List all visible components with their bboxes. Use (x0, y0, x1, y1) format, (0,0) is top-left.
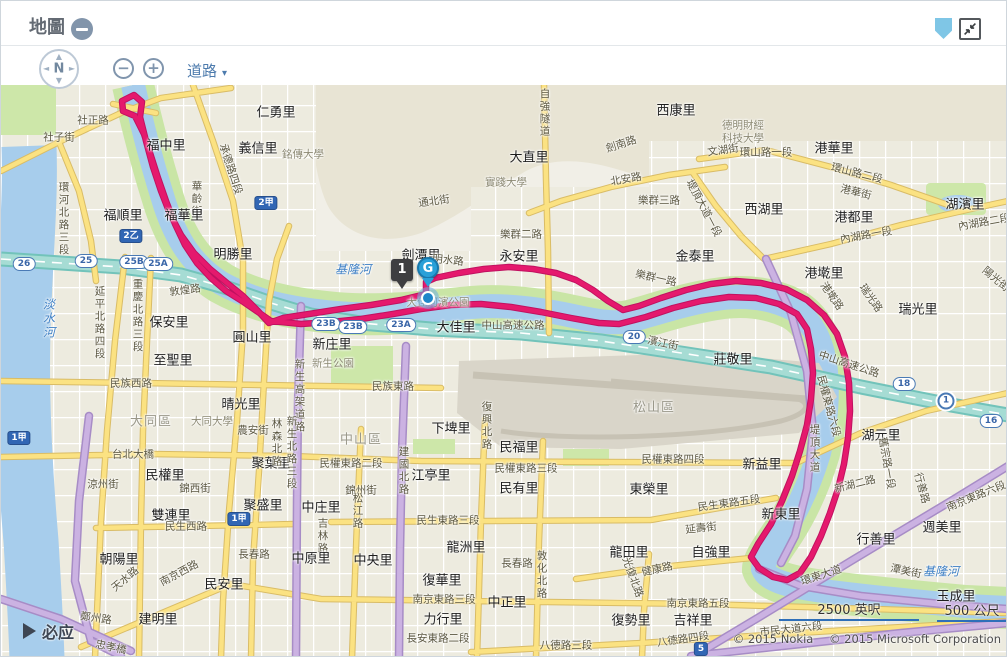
resize-button[interactable] (959, 18, 981, 40)
copyright-microsoft: © 2015 Microsoft Corporation (829, 632, 1001, 646)
scale-metric: 500 公尺 (937, 600, 1007, 622)
marker-label: G (417, 257, 439, 279)
chevron-down-icon: ▾ (222, 68, 227, 79)
minus-icon (76, 28, 88, 31)
bing-logo-text: 必应 (42, 619, 74, 643)
collapse-panel-button[interactable] (71, 18, 93, 40)
compass-control[interactable]: N ▲ ▼ ◄ ► (39, 49, 79, 89)
marker-tail (422, 278, 434, 287)
zoom-in-button[interactable]: + (143, 58, 164, 79)
route-marker-G[interactable]: G (416, 257, 440, 289)
resize-arrows-icon (961, 20, 979, 38)
map-type-dropdown[interactable]: 道路▾ (187, 60, 227, 81)
bing-logo[interactable]: 必应 (23, 619, 74, 643)
pan-left-arrow-icon[interactable]: ◄ (43, 65, 49, 73)
map-type-label: 道路 (187, 62, 217, 80)
route-start-dot[interactable] (417, 287, 439, 309)
marker-tail (396, 280, 408, 289)
panel-title: 地圖 (29, 13, 65, 39)
pan-up-arrow-icon[interactable]: ▲ (56, 53, 62, 61)
pan-down-arrow-icon[interactable]: ▼ (56, 77, 62, 85)
route-start-dot-inner (421, 291, 435, 305)
markers-layer: 1G (1, 1, 1006, 656)
panel-header: 地圖 (1, 1, 1006, 46)
copyright: © 2015 Nokia © 2015 Microsoft Corporatio… (721, 632, 1001, 646)
scale-imperial: 2500 英呎 (779, 599, 919, 621)
pan-right-arrow-icon[interactable]: ► (69, 65, 75, 73)
shield-icon[interactable] (935, 18, 952, 39)
copyright-nokia: © 2015 Nokia (733, 632, 814, 646)
marker-label: 1 (391, 259, 413, 281)
bing-logo-icon (23, 623, 36, 639)
compass-north-label: N (54, 62, 65, 77)
route-marker-1[interactable]: 1 (390, 259, 414, 291)
zoom-out-button[interactable]: − (113, 58, 134, 79)
map-widget: 社正路社子街仁勇里福中里義信里銘傳大學承德路四段華齡街福順里福華里明勝里環河北路… (0, 0, 1007, 657)
